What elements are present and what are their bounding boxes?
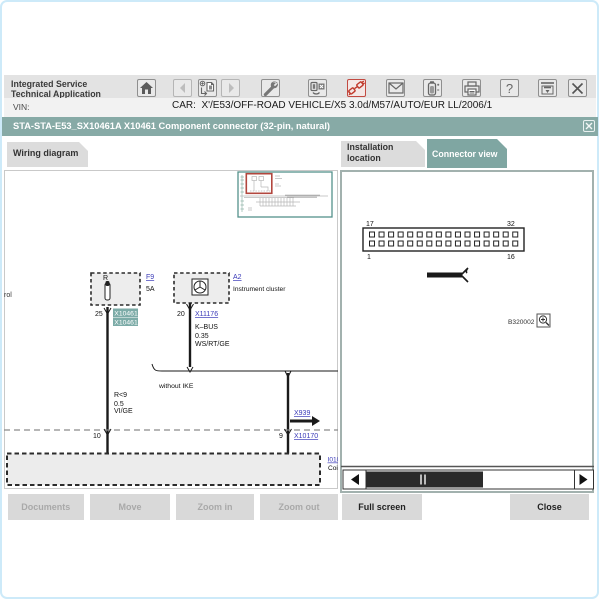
svg-text:VI/GE: VI/GE [114, 408, 133, 415]
svg-text:WS/RT/GE: WS/RT/GE [195, 341, 230, 348]
svg-text:R<9: R<9 [114, 392, 127, 399]
svg-text:X11176: X11176 [195, 311, 218, 318]
svg-text:R: R [103, 275, 108, 282]
svg-text:X10461: X10461 [114, 310, 138, 317]
svg-text:A2: A2 [233, 274, 242, 281]
svg-text:B320002: B320002 [508, 319, 535, 326]
svg-text:I010: I010 [328, 457, 339, 464]
svg-text:1: 1 [367, 254, 371, 261]
svg-text:Instrument cluster: Instrument cluster [233, 286, 286, 293]
svg-text:F9: F9 [146, 274, 154, 281]
svg-text:X10461: X10461 [114, 319, 138, 326]
svg-text:16: 16 [507, 254, 515, 261]
svg-text:25: 25 [95, 311, 103, 318]
svg-text:20: 20 [177, 311, 185, 318]
svg-text:32: 32 [507, 221, 515, 228]
svg-text:Coi: Coi [328, 465, 338, 472]
svg-text:17: 17 [366, 221, 374, 228]
svg-text:X10170: X10170 [294, 433, 318, 440]
svg-text:X939: X939 [294, 410, 310, 417]
svg-text:10: 10 [93, 433, 101, 440]
svg-text:0.35: 0.35 [195, 333, 209, 340]
svg-text:0.5: 0.5 [114, 401, 124, 408]
svg-text:5A: 5A [146, 286, 155, 293]
svg-text:K–BUS: K–BUS [195, 324, 218, 331]
svg-text:9: 9 [279, 433, 283, 440]
svg-text:without IKE: without IKE [158, 383, 194, 390]
